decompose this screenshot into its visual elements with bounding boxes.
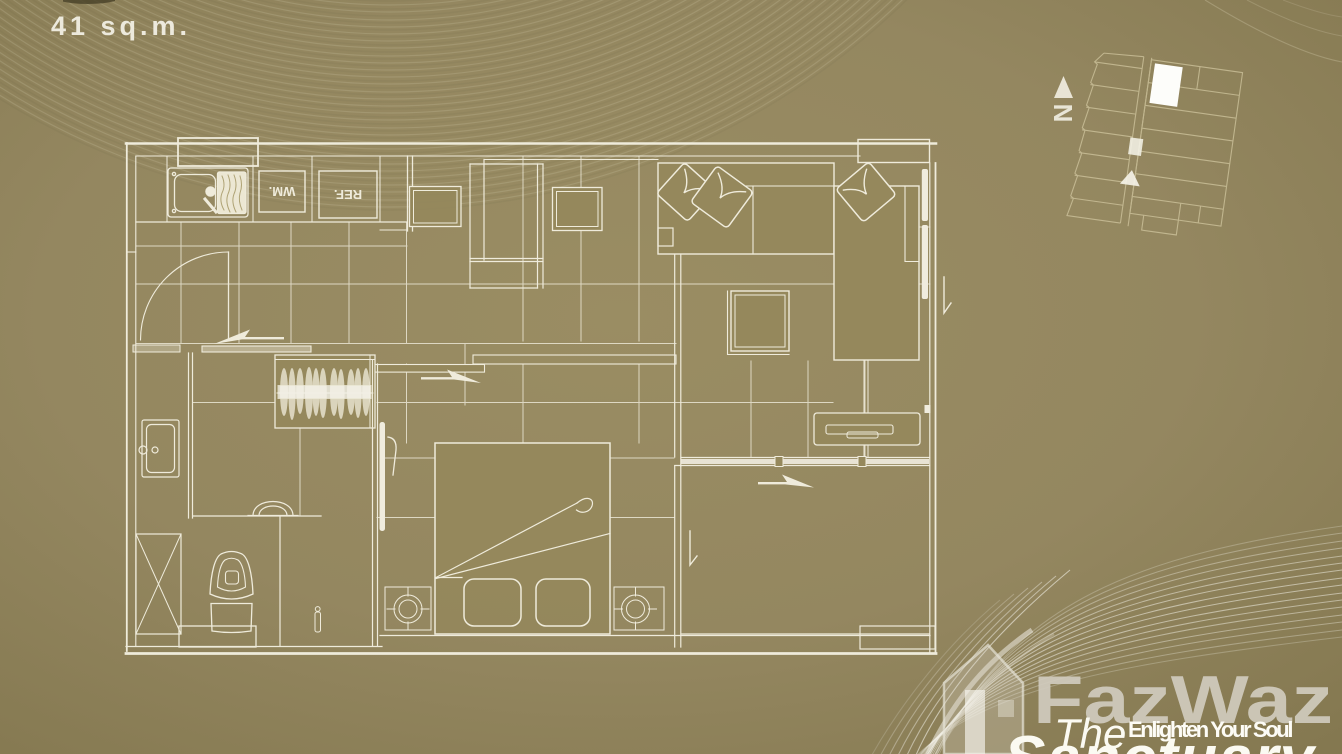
svg-text:REF.: REF. xyxy=(334,187,362,202)
svg-text:WM.: WM. xyxy=(269,184,296,199)
svg-text:41 sq.m.: 41 sq.m. xyxy=(51,11,191,41)
svg-text:Sanctuary: Sanctuary xyxy=(1004,724,1318,754)
svg-text:N: N xyxy=(1048,104,1078,123)
